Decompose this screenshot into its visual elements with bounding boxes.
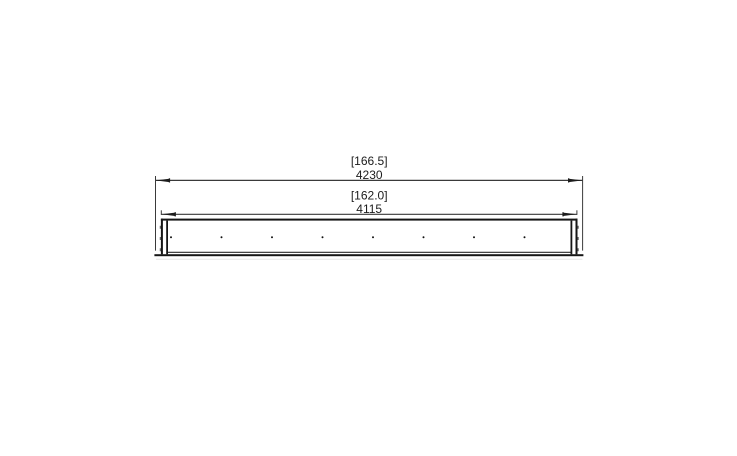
svg-text:[166.5]: [166.5]	[351, 154, 388, 168]
svg-text:[162.0]: [162.0]	[351, 189, 388, 203]
svg-text:4115: 4115	[356, 202, 382, 216]
svg-text:4230: 4230	[356, 168, 383, 182]
